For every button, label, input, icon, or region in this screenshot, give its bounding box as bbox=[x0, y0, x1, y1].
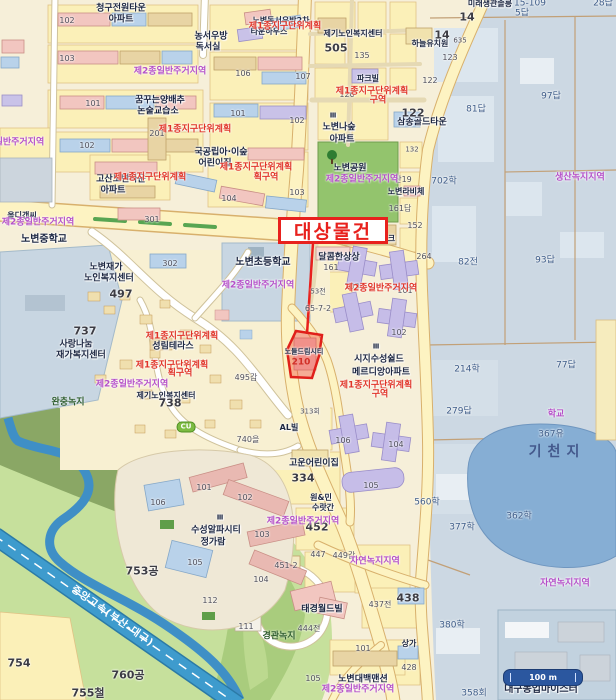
map-label: 수성알파시티 bbox=[191, 527, 241, 536]
map-label: 하늘유치원 bbox=[412, 40, 449, 48]
map-label: 497 bbox=[110, 289, 133, 300]
map-label: 104 bbox=[221, 195, 236, 203]
map-label: 377학 bbox=[449, 524, 474, 533]
map-label: 437전 bbox=[369, 601, 392, 609]
map-label: 자연녹지지역 bbox=[540, 580, 590, 589]
map-label: 126 bbox=[339, 91, 354, 99]
map-label: 구역 bbox=[370, 97, 387, 106]
map-label: 444전 bbox=[298, 625, 321, 633]
map-label: 제기노인복지센터 bbox=[137, 392, 196, 400]
map-label: 수랏간 bbox=[312, 504, 334, 512]
map-label: Ⅲ bbox=[373, 344, 380, 351]
map-label: 획구역 bbox=[254, 174, 279, 183]
map-label: 아파트 bbox=[101, 187, 126, 196]
map-label: 102 bbox=[79, 142, 94, 150]
map-label: 노변초등학교 bbox=[235, 258, 290, 268]
map-label: 755철 bbox=[71, 688, 104, 699]
map-label: 65-7-2 bbox=[305, 305, 331, 313]
map-label: 제2종일반주거지역 bbox=[267, 518, 340, 527]
map-label: 367유 bbox=[538, 431, 563, 440]
map-label: 기천지 bbox=[529, 445, 586, 459]
map-label: 93답 bbox=[535, 257, 555, 266]
map-label: 106 bbox=[150, 499, 165, 507]
map-label: 삼송골드타운 bbox=[397, 119, 447, 128]
map-label: 타운하우스 bbox=[251, 28, 288, 36]
map-label: 경관녹지 bbox=[262, 633, 295, 642]
map-label: 104 bbox=[388, 441, 403, 449]
map-label: 105 bbox=[305, 675, 320, 683]
map-label: 노변동서우방2차 bbox=[252, 17, 309, 25]
map-label: 제2종일반주거지역 bbox=[0, 139, 44, 148]
map-label: 노인복지센터 bbox=[84, 275, 134, 284]
map-label: 14 bbox=[434, 30, 449, 41]
map-label: 사랑나눔 bbox=[59, 341, 92, 350]
map-label: 아파트 bbox=[330, 136, 355, 145]
map-label: 생산녹지지역 bbox=[555, 174, 605, 183]
map-label: 495갑 bbox=[235, 374, 258, 382]
map-label: 103 bbox=[254, 531, 269, 539]
map-label: 107 bbox=[295, 73, 310, 81]
map-label: 560학 bbox=[414, 499, 439, 508]
map-label: 제2종일반주거지역 bbox=[134, 68, 207, 77]
map-label: 702학 bbox=[431, 178, 456, 187]
map-label: 재가복지센터 bbox=[56, 352, 106, 361]
map-label: 358회 bbox=[461, 690, 486, 699]
map-label: 214학 bbox=[454, 366, 479, 375]
map-label: 파크빌 bbox=[357, 75, 379, 83]
map-label: 635 bbox=[453, 38, 466, 45]
map-label: 달콤한상상 bbox=[318, 254, 359, 263]
map-label: 제1종지구단위계획 bbox=[220, 164, 293, 173]
map-label: 102 bbox=[59, 17, 74, 25]
map-label: 438 bbox=[397, 593, 420, 604]
map-label: 380학 bbox=[439, 622, 464, 631]
map-label: 제2종일반주거지역 bbox=[322, 686, 395, 695]
map-label: 451-2 bbox=[274, 562, 297, 570]
map-label: 노변중학교 bbox=[21, 235, 67, 245]
map-label: 메르디앙아파트 bbox=[352, 369, 410, 378]
map-label: 101 bbox=[85, 100, 100, 108]
map-label: 노들드림시티 bbox=[285, 349, 324, 356]
map-label: 태경월드빌 bbox=[301, 606, 342, 615]
map-label: 102 bbox=[391, 329, 406, 337]
map-label: 중앙고속(부산-대구) bbox=[69, 585, 155, 649]
map-label: 제1종지구단위계획 bbox=[340, 382, 413, 391]
map-label: 428 bbox=[401, 664, 416, 672]
map-label: 82전 bbox=[458, 259, 478, 268]
map-label: 대구농업마이스터 bbox=[504, 685, 578, 695]
map-label: 447 bbox=[310, 551, 325, 559]
map-label: 161답 bbox=[389, 205, 412, 213]
map-label: 102 bbox=[289, 117, 304, 125]
map-label: 103 bbox=[344, 283, 359, 291]
map-label: 국공립아·이숲 bbox=[194, 149, 247, 158]
map-label: 97답 bbox=[541, 93, 561, 102]
map-label: 302 bbox=[162, 260, 177, 268]
map-label: 노변재가 bbox=[89, 264, 122, 273]
map-label: 122 bbox=[402, 108, 425, 119]
map-label: 구역 bbox=[372, 391, 389, 400]
map-label: 고산노변타운 bbox=[96, 176, 146, 185]
map-label: 103 bbox=[59, 55, 74, 63]
map-label: 산19 bbox=[394, 176, 412, 184]
map-label: 754 bbox=[8, 658, 31, 669]
map-label: 101 bbox=[397, 287, 412, 295]
map-label: 성림테라스 bbox=[152, 343, 193, 352]
map-label: 제1종지구단위계획 bbox=[114, 174, 187, 183]
map-label: 106 bbox=[335, 437, 350, 445]
map-label: 제1종지구단위계획 bbox=[249, 23, 322, 32]
map-label: 자연녹지지역 bbox=[350, 558, 400, 567]
target-annotation-box: 대상물건 bbox=[278, 217, 388, 244]
map-label: 농서우방 bbox=[194, 33, 227, 42]
map-label: 15-109 bbox=[514, 0, 546, 9]
scale-bar-label: 100 m bbox=[529, 673, 557, 682]
map-label: 210 bbox=[292, 359, 311, 368]
map-label: 제2종일반주거지역 bbox=[326, 176, 399, 185]
map-label: 시지수성쉴드 bbox=[354, 356, 404, 365]
map-label: 279답 bbox=[446, 408, 471, 417]
map-label: 740을 bbox=[237, 436, 260, 444]
map-label: 독서실 bbox=[196, 44, 221, 53]
map-label: 노변라비체 bbox=[388, 188, 425, 196]
map-label: AL빌 bbox=[280, 424, 299, 432]
map-label: 제2종일반주거지역 bbox=[345, 285, 418, 294]
map-label: 올디갠씨 bbox=[7, 212, 36, 220]
map-label: 135 bbox=[354, 52, 369, 60]
map-label: 14 bbox=[459, 12, 474, 23]
map-label: 노변나숲 bbox=[322, 124, 355, 133]
map-label: 제1종지구단위계획 bbox=[159, 126, 232, 135]
map-label: 완충녹지 bbox=[51, 399, 84, 408]
map-label: 학교 bbox=[548, 411, 565, 420]
map-label: 어린이집 bbox=[198, 160, 231, 169]
map-label: 123 bbox=[442, 54, 457, 62]
map-label: 161 bbox=[323, 264, 338, 272]
map-label: 264 bbox=[416, 253, 431, 261]
map-label: 449갑 bbox=[333, 552, 356, 560]
map-label: 362학 bbox=[506, 513, 531, 522]
map-label: 132 bbox=[405, 147, 418, 154]
map-label: 5답 bbox=[515, 10, 529, 19]
map-label: 505 bbox=[325, 43, 348, 54]
map-label: 101 bbox=[230, 110, 245, 118]
map-label: 101 bbox=[355, 645, 370, 653]
map-label: 152 bbox=[407, 222, 422, 230]
map-label: 105 bbox=[187, 559, 202, 567]
map-label: 획구역 bbox=[168, 370, 193, 379]
map-label: 737 bbox=[74, 326, 97, 337]
map-label: 미래생관솔릉 bbox=[468, 0, 512, 8]
map-label: 753공 bbox=[125, 566, 158, 577]
scale-bar: 100 m bbox=[503, 669, 583, 686]
map-label: 738 bbox=[159, 398, 182, 409]
map-label: 제기노인복지센터 bbox=[324, 30, 383, 38]
map-label: 원&민 bbox=[310, 494, 332, 502]
map-label: 28답 bbox=[593, 0, 613, 9]
map-label: 81답 bbox=[466, 106, 486, 115]
map-label: 상가 bbox=[402, 640, 417, 648]
map-label: 제1종지구단위계획 bbox=[146, 333, 219, 342]
map-label: 제2종일반주거지역 bbox=[222, 282, 295, 291]
map-label: 제2종일반주거지역 bbox=[2, 219, 75, 228]
map-label: 53전 bbox=[310, 289, 325, 296]
map-label: 103 bbox=[289, 189, 304, 197]
map-label: 102 bbox=[237, 494, 252, 502]
map-label: 112 bbox=[202, 597, 217, 605]
map-label: 101 bbox=[196, 484, 211, 492]
target-annotation-label: 대상물건 bbox=[294, 217, 372, 244]
map-label: 제1종지구단위계획 bbox=[136, 362, 209, 371]
map-label: 104 bbox=[253, 576, 268, 584]
map-label: 334 bbox=[292, 473, 315, 484]
map-label: 노변공원 bbox=[333, 165, 366, 174]
map-label: 노변대백맨션 bbox=[338, 676, 388, 685]
map-label: 제1종지구단위계획 bbox=[336, 88, 409, 97]
map-label: 꿈꾸는양배추 bbox=[135, 97, 185, 106]
map-labels-layer: 청구전원타운아파트농서우방독서실노변동서우방2차타운하우스제기노인복지센터하늘유… bbox=[0, 0, 616, 700]
map-label: 77답 bbox=[556, 362, 576, 371]
map-label: 청구전원타운 bbox=[96, 5, 146, 14]
map-label: 106 bbox=[235, 70, 250, 78]
map-label: Ⅲ bbox=[330, 113, 337, 120]
map-label: 760공 bbox=[111, 670, 144, 681]
map-label: 정가람 bbox=[201, 539, 226, 548]
map-label: 고운어린이집 bbox=[289, 460, 339, 469]
map-label: Ⅲ bbox=[217, 515, 224, 522]
map-label: 111 bbox=[238, 623, 253, 631]
map-label: 105 bbox=[363, 482, 378, 490]
map-label: 452 bbox=[306, 522, 329, 533]
map-label: CU bbox=[177, 422, 196, 433]
map-label: 301 bbox=[144, 216, 159, 224]
map-label: 122 bbox=[422, 77, 437, 85]
map-label: 제2종일반주거지역 bbox=[96, 381, 169, 390]
map-viewport[interactable]: 청구전원타운아파트농서우방독서실노변동서우방2차타운하우스제기노인복지센터하늘유… bbox=[0, 0, 616, 700]
map-label: 아파트 bbox=[109, 16, 134, 25]
map-label: 313회 bbox=[300, 409, 320, 416]
map-label: 201 bbox=[149, 130, 164, 138]
map-label: 논술교습소 bbox=[137, 108, 178, 117]
